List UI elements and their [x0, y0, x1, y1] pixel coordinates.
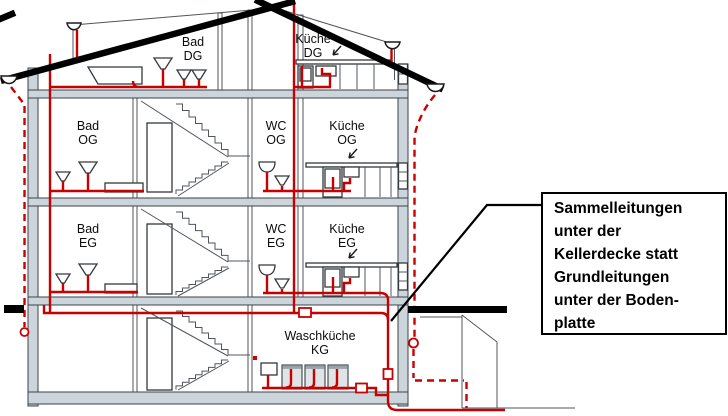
callout-line: Kellerdecke statt: [554, 243, 721, 266]
sink-icon: [344, 267, 359, 277]
faucet-arrow-icon: [349, 149, 357, 158]
callout-line: platte: [554, 312, 721, 335]
callout-line: Sammelleitungen: [554, 197, 721, 220]
room-label-wc-eg: WCEG: [266, 223, 287, 250]
utility-sink-icon: [261, 363, 277, 375]
drain-funnel-icon: [275, 176, 289, 185]
rain-downpipe-right: [415, 95, 436, 337]
grade-line-left: [4, 305, 24, 313]
callout-line: unter der: [554, 220, 721, 243]
fixtures-wc-og: [259, 162, 289, 185]
grade-line-right: [408, 306, 507, 313]
washbasin-icon: [79, 162, 97, 173]
rain-downpipe-left: [11, 87, 25, 327]
room-label-kueche-eg: KücheEG: [329, 223, 364, 250]
room-label-bad-eg: BadEG: [77, 223, 99, 250]
roof-right-slope: [258, 1, 440, 88]
room-label-bad-dg: BadDG: [182, 36, 204, 63]
fixtures-wc-eg: [259, 265, 289, 288]
cleanout-icon: [356, 384, 367, 393]
vent-valve-icon: [253, 356, 257, 360]
kitchen-eg: [306, 249, 397, 296]
faucet-arrow-icon: [349, 249, 357, 258]
inspection-opening-icon: [21, 328, 29, 336]
toilet-icon: [259, 162, 275, 172]
room-label-kueche-og: KücheOG: [329, 120, 364, 147]
drain-funnel-icon: [177, 70, 191, 79]
room-label-waschkueche-kg: WaschkücheKG: [284, 330, 355, 357]
window-right-og: [399, 163, 408, 189]
room-label-kueche-dg: KücheDG: [295, 33, 330, 60]
building-section-diagram: BadDG KücheDG BadOG WCOG KücheOG BadEG W…: [0, 0, 728, 416]
laundry-kg: [261, 363, 348, 389]
door-kg: [147, 318, 172, 390]
drain-funnel-icon: [56, 172, 70, 181]
inspection-opening-icon: [409, 339, 418, 348]
gutter-icon: [385, 42, 400, 49]
drain-funnel-icon: [56, 274, 70, 283]
fixtures-bad-eg: [56, 264, 137, 293]
drain-funnel-icon: [192, 70, 206, 79]
staircase: [141, 101, 250, 390]
washbasin-icon: [154, 58, 172, 69]
cleanout-icon: [384, 369, 393, 379]
door-og: [147, 123, 172, 192]
cleanout-icon: [299, 308, 311, 317]
window-right-eg: [399, 263, 408, 290]
rain-connection-underground: [414, 349, 467, 408]
door-eg: [147, 224, 172, 294]
washbasin-icon: [79, 264, 97, 275]
gutter-icon: [67, 23, 81, 30]
faucet-arrow-icon: [333, 46, 341, 55]
callout-line: unter der Boden-: [554, 289, 721, 312]
drain-funnel-icon: [275, 279, 289, 288]
sink-icon: [344, 167, 359, 177]
room-label-wc-og: WCOG: [266, 120, 287, 147]
callout-sammelleitungen: Sammelleitungen unter der Kellerdecke st…: [541, 192, 727, 335]
room-label-bad-og: BadOG: [77, 120, 99, 147]
toilet-icon: [259, 265, 275, 275]
callout-line: Grundleitungen: [554, 266, 721, 289]
fixtures-bad-og: [56, 162, 143, 192]
roof-edge-fragment: [0, 14, 12, 19]
